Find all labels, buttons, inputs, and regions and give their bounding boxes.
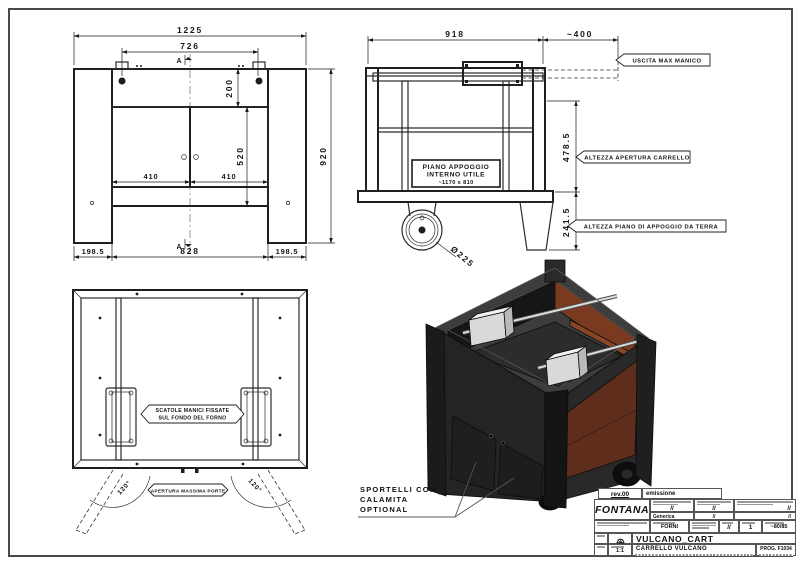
drawing-title-cell: CARRELLO VULCANO: [632, 544, 756, 556]
dim-1225: 1225: [177, 25, 203, 35]
dim-478: 478.5: [561, 132, 571, 162]
scale-cell: 1:1: [608, 544, 632, 556]
side-view: Ø225 PIANO APPOGGIO INTERNO UTILE ~1170 …: [350, 10, 800, 262]
svg-text:PIANO APPOGGIO: PIANO APPOGGIO: [423, 164, 490, 171]
dim-400: ~400: [567, 29, 593, 39]
drawing-code: VULCANO_CART: [632, 533, 796, 544]
field-5: [689, 520, 719, 533]
front-view: 1225 726 200 520 920 410 410 198.: [50, 10, 350, 272]
drawing-sheet: 1225 726 200 520 920 410 410 198.: [0, 0, 800, 563]
brand-logo: FONTANA: [594, 499, 650, 520]
svg-text:INTERNO UTILE: INTERNO UTILE: [427, 172, 485, 179]
sportelli-callout: SPORTELLI CON CALAMITA OPTIONAL: [360, 485, 436, 515]
field-2: //: [694, 499, 734, 512]
dim-520: 520: [235, 146, 245, 166]
section-marker-top: A: [176, 55, 192, 65]
dim-241: 241.5: [561, 207, 571, 237]
dim-726: 726: [180, 41, 200, 51]
dim-198-left: 198.5: [82, 247, 105, 256]
weight-cell: ~80/85: [762, 520, 796, 533]
svg-text:SCATOLE MANICI FISSATE: SCATOLE MANICI FISSATE: [156, 408, 230, 414]
family-value-2: //: [734, 512, 796, 520]
svg-text:A: A: [176, 244, 181, 251]
dept-cell: FORNI: [650, 520, 689, 533]
field-1: //: [650, 499, 694, 512]
field-3: //: [734, 499, 796, 512]
dim-410-left: 410: [144, 172, 159, 181]
flag-altezza-piano: ALTEZZA PIANO DI APPOGGIO DA TERRA: [584, 225, 719, 231]
dim-200: 200: [224, 78, 234, 98]
apertura-callout: APERTURA MASSIMA PORTE: [148, 484, 228, 496]
field-7: [594, 533, 608, 544]
caster-wheel: [402, 202, 442, 250]
qty-cell: 1: [739, 520, 762, 533]
field-4: [594, 520, 650, 533]
front-view-dimensions: 1225 726 200 520 920 410 410 198.: [74, 25, 335, 261]
rev-label: rev.00: [598, 488, 642, 499]
front-view-geometry: [74, 54, 306, 254]
iso-cart: [426, 260, 656, 510]
top-view: 120° 120° SCATOLE MANICI FISSATE SUL FON…: [50, 280, 330, 558]
dim-918: 918: [445, 29, 465, 39]
svg-text:~1170 x 810: ~1170 x 810: [438, 180, 473, 186]
rev-description: emissione: [642, 488, 722, 499]
flag-uscita-max-manico: USCITA MAX MANICO: [632, 59, 701, 65]
top-bracket-right: [238, 62, 269, 69]
gear-logo-cell: [608, 533, 632, 544]
angle-right: 120°: [247, 477, 264, 495]
door-swing: 120° 120°: [76, 470, 305, 534]
family-value: //: [694, 512, 734, 520]
side-view-flags: USCITA MAX MANICO ALTEZZA APERTURA CARRE…: [568, 54, 726, 232]
field-6: //: [719, 520, 739, 533]
dim-828: 828: [180, 246, 200, 256]
dim-198-right: 198.5: [276, 247, 299, 256]
flag-altezza-apertura: ALTEZZA APERTURA CARRELLO: [584, 156, 689, 162]
side-view-geometry: Ø225 PIANO APPOGGIO INTERNO UTILE ~1170 …: [358, 62, 618, 270]
scatole-callout: SCATOLE MANICI FISSATE SUL FONDO DEL FOR…: [141, 405, 244, 423]
prog-cell: PROG. F1034: [756, 544, 796, 556]
iso-view: [340, 250, 700, 522]
svg-text:APERTURA MASSIMA PORTE: APERTURA MASSIMA PORTE: [151, 489, 226, 495]
rear-foot: [520, 202, 553, 250]
piano-appoggio-box: PIANO APPOGGIO INTERNO UTILE ~1170 x 810: [412, 160, 500, 187]
top-bracket-left: [112, 62, 142, 69]
dim-920: 920: [318, 146, 328, 166]
field-8: [594, 544, 608, 556]
dim-410-right: 410: [222, 172, 237, 181]
handle-plate-right: [241, 388, 271, 446]
family-label: Generica: [650, 512, 694, 520]
title-block: rev.00 emissione FONTANA // // // Generi…: [594, 488, 796, 556]
svg-text:A: A: [176, 58, 181, 65]
top-view-geometry: [73, 290, 307, 473]
svg-text:SUL FONDO DEL FORNO: SUL FONDO DEL FORNO: [158, 416, 226, 422]
